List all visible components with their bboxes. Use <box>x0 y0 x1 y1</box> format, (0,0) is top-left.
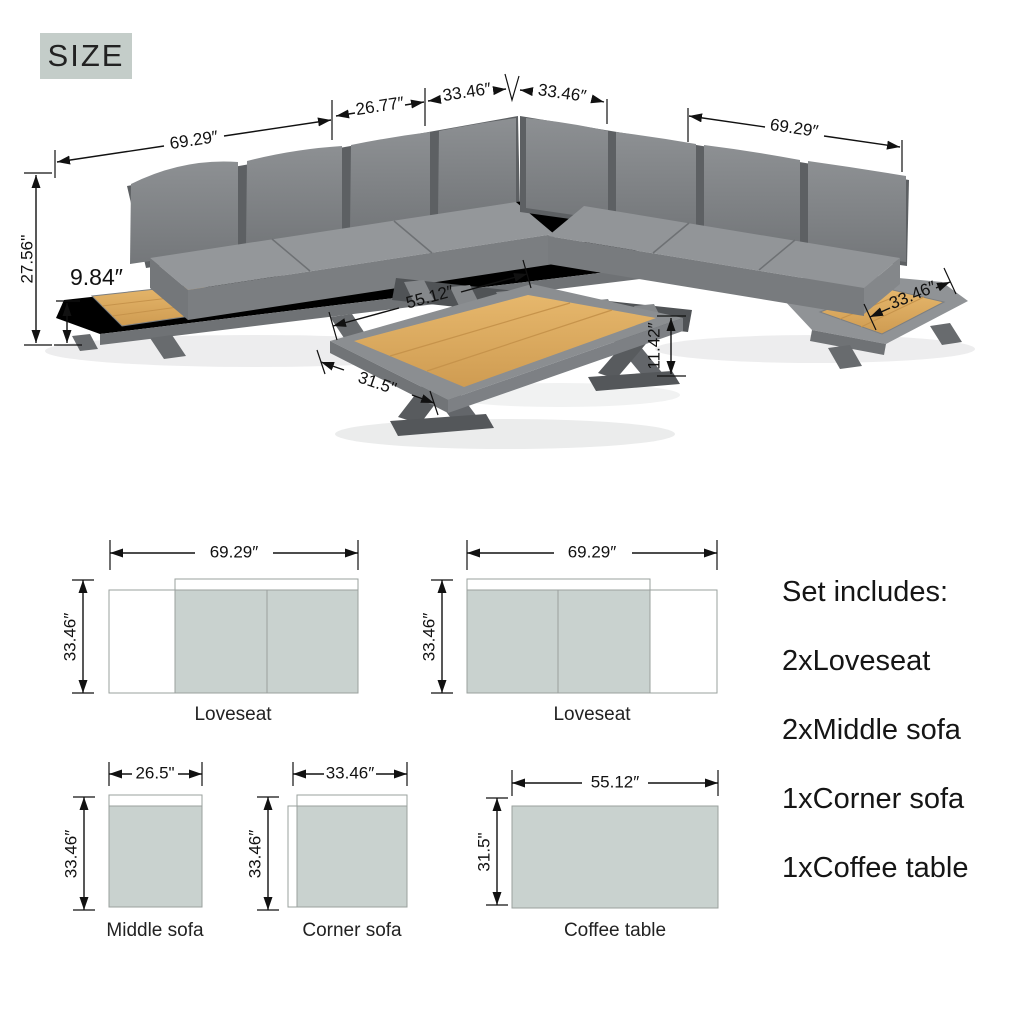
dimension-label: 33.46″ <box>419 613 438 662</box>
loveseat-backrest <box>467 579 650 590</box>
dimension-label: 33.46″ <box>60 613 79 662</box>
middle-sofa-backrest <box>109 795 202 806</box>
dimension-label: 69.29″ <box>769 115 820 141</box>
dimension-label: 26.77″ <box>354 93 405 119</box>
coffee-table-top <box>512 806 718 908</box>
corner-sofa-backrest-top <box>297 795 407 806</box>
set-includes-item: 1xCoffee table <box>782 852 969 885</box>
diagram-corner-sofa: 33.46″ 33.46″ Corner sofa <box>232 755 432 955</box>
loveseat-backrest <box>175 579 358 590</box>
set-includes: Set includes: 2xLoveseat 2xMiddle sofa 1… <box>782 576 969 921</box>
diagram-title: Loveseat <box>194 704 272 725</box>
dimension-label: 33.46″ <box>326 763 375 782</box>
dimension-label: 55.12″ <box>591 772 640 791</box>
back-cushion <box>350 132 430 231</box>
back-cushion <box>438 118 516 217</box>
diagram-coffee-table: 55.12″ 31.5" Coffee table <box>452 755 747 955</box>
set-includes-title: Set includes: <box>782 576 969 609</box>
size-chart-page: SIZE <box>0 0 1024 1024</box>
diagram-title: Coffee table <box>564 920 666 941</box>
dimension-label: 11.42″ <box>644 322 663 369</box>
back-cushion <box>526 118 608 220</box>
set-includes-item: 2xMiddle sofa <box>782 714 969 747</box>
dimension-label: 69.29″ <box>168 127 219 153</box>
diagram-middle-sofa: 26.5" 33.46″ Middle sofa <box>48 755 233 955</box>
dimension-label: 27.56'' <box>17 234 36 283</box>
dimension-label: 69.29″ <box>210 542 259 561</box>
dimension-label: 31.5" <box>474 832 493 871</box>
dimension-label: 33.46″ <box>61 830 80 879</box>
diagram-title: Loveseat <box>553 704 631 725</box>
corner-sofa-backrest-left <box>288 806 297 907</box>
dimension-label: 69.29″ <box>568 542 617 561</box>
corner-sofa-cushion <box>297 806 407 907</box>
diagram-loveseat-left: 69.29″ 33.46″ Loveseat <box>55 530 375 735</box>
diagram-title: Corner sofa <box>302 920 402 941</box>
diagram-title: Middle sofa <box>106 920 204 941</box>
set-includes-item: 2xLoveseat <box>782 645 969 678</box>
dimension-label: 33.46″ <box>441 79 492 105</box>
dimension-label: 26.5" <box>135 763 174 782</box>
middle-sofa-cushion <box>109 806 202 907</box>
dimension-label: 9.84″ <box>70 264 123 290</box>
dimension-label: 33.46″ <box>537 80 588 106</box>
diagram-loveseat-right: 69.29″ 33.46″ Loveseat <box>412 530 742 735</box>
dimension-label: 33.46″ <box>245 830 264 879</box>
set-includes-item: 1xCorner sofa <box>782 783 969 816</box>
main-3d-view: 69.29″ 26.77″ 33.46″ 33.46″ 69.29″ <box>0 0 1024 525</box>
